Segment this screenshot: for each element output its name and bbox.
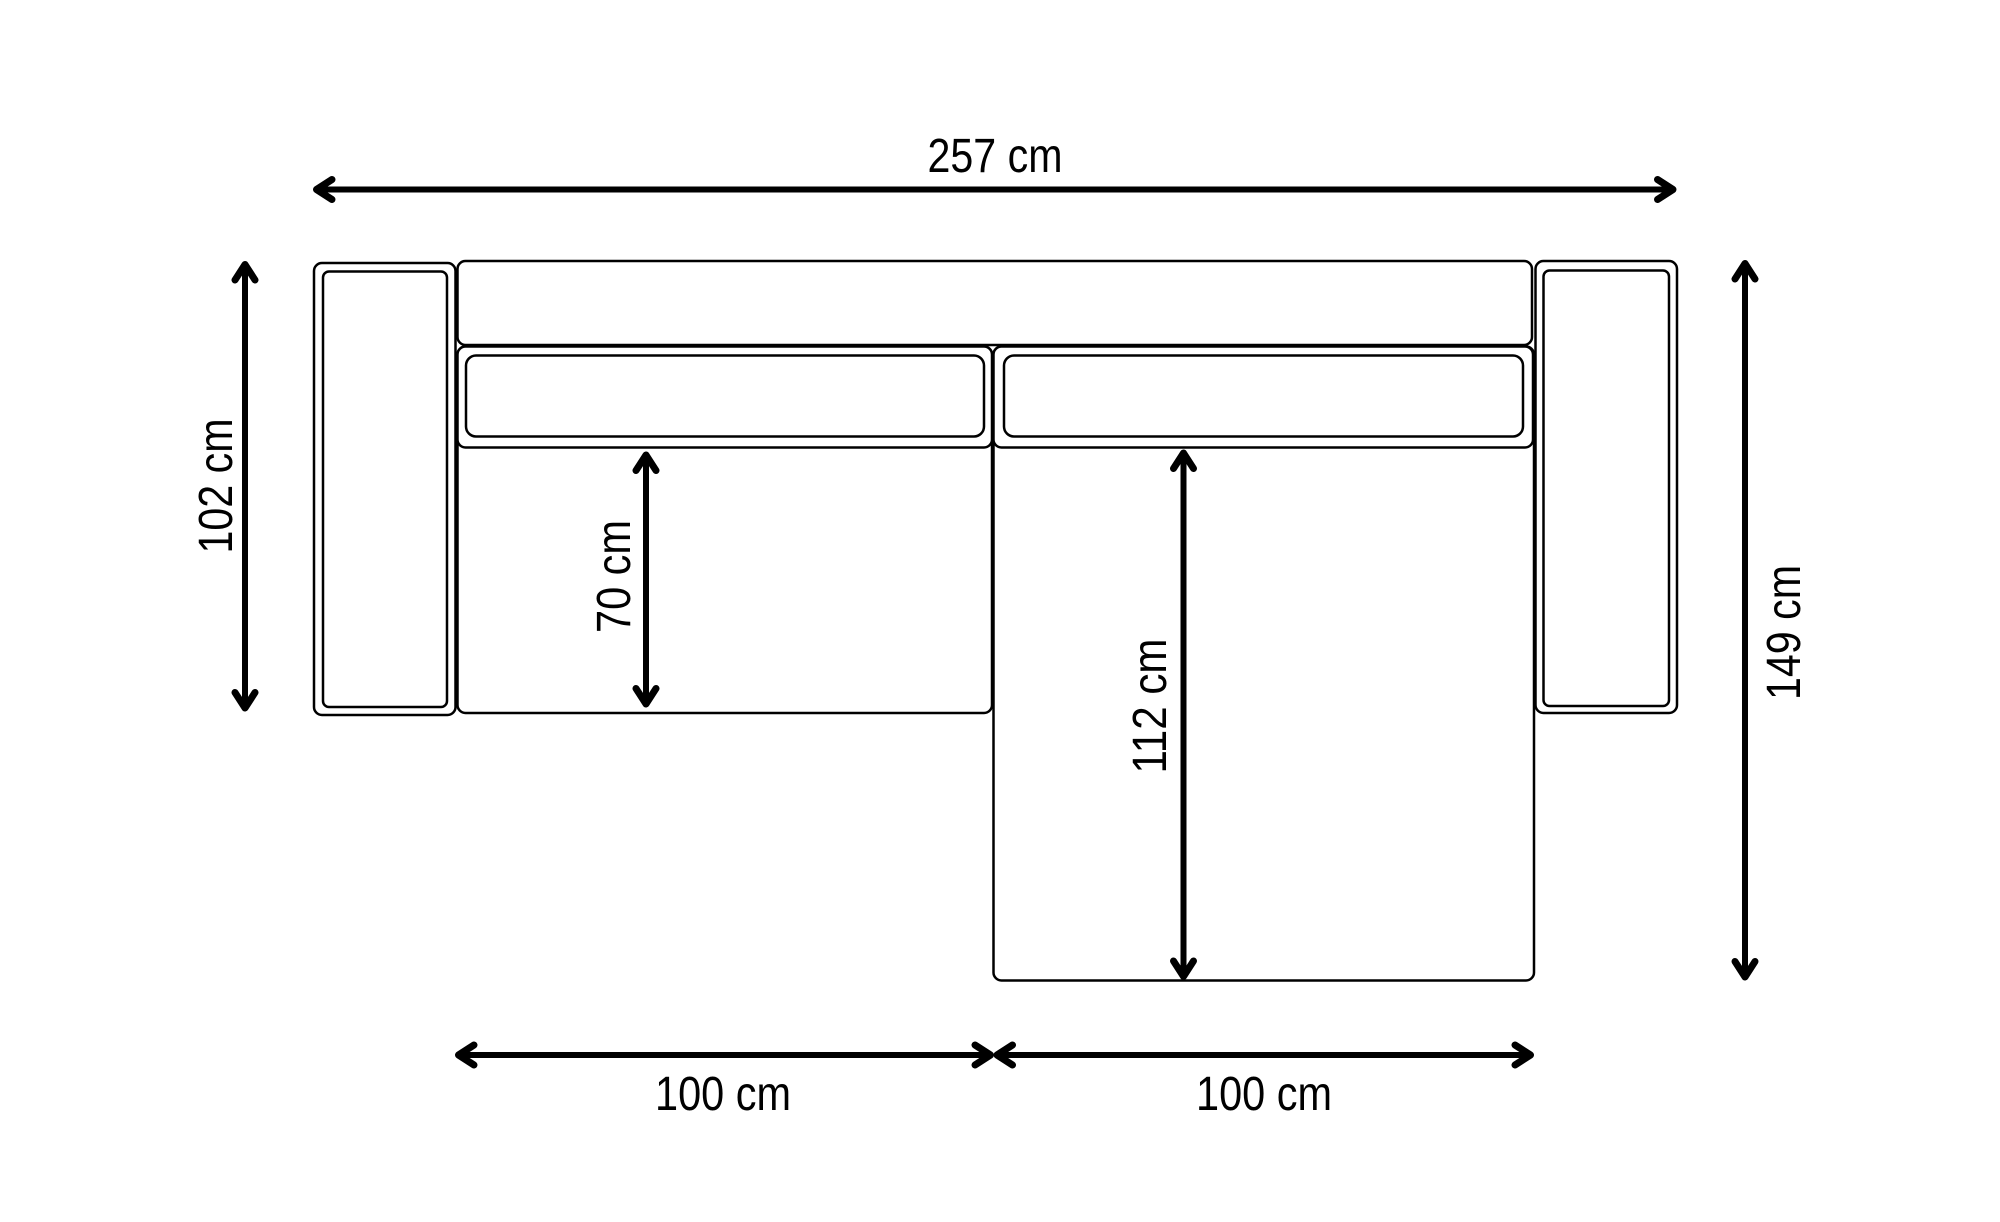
svg-text:102 cm: 102 cm <box>190 419 243 554</box>
svg-text:149 cm: 149 cm <box>1758 565 1811 700</box>
svg-text:257 cm: 257 cm <box>928 130 1063 183</box>
svg-text:100 cm: 100 cm <box>655 1068 791 1121</box>
svg-text:112 cm: 112 cm <box>1124 639 1177 774</box>
svg-text:70 cm: 70 cm <box>588 520 641 633</box>
svg-text:100 cm: 100 cm <box>1196 1068 1332 1121</box>
